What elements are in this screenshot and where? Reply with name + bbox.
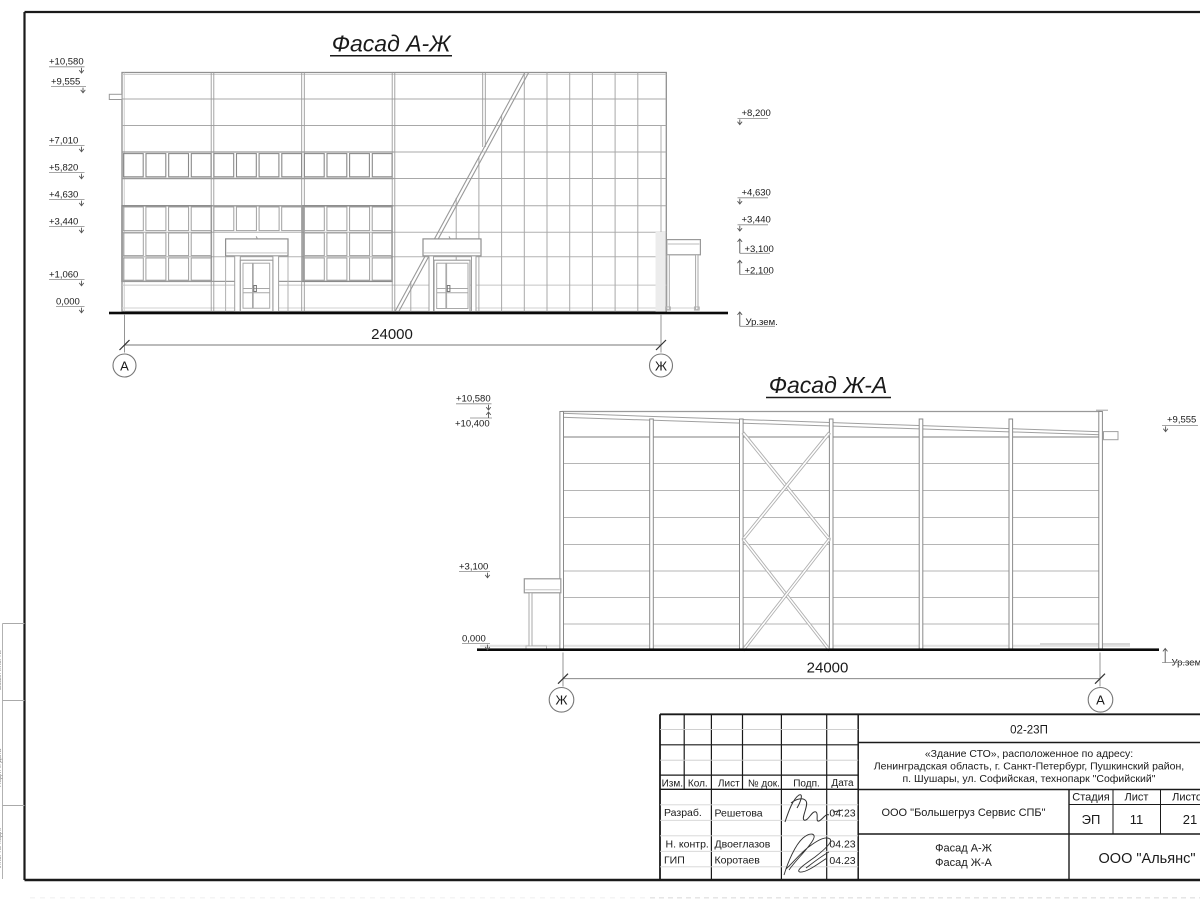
svg-text:04.23: 04.23 (829, 855, 855, 867)
svg-text:Подп.: Подп. (793, 779, 820, 790)
svg-text:+9,555: +9,555 (1167, 414, 1196, 425)
svg-text:А: А (120, 358, 129, 373)
svg-text:+10,580: +10,580 (49, 57, 84, 68)
svg-text:Фасад А-Ж: Фасад А-Ж (935, 843, 992, 855)
svg-text:24000: 24000 (807, 660, 849, 677)
svg-text:Дата: Дата (831, 778, 854, 789)
svg-text:«Здание СТО», расположенное по: «Здание СТО», расположенное по адресу: (925, 748, 1133, 760)
svg-text:А: А (1096, 693, 1105, 708)
svg-text:Двоеглазов: Двоеглазов (715, 839, 771, 851)
svg-text:+5,820: +5,820 (49, 162, 78, 173)
svg-text:Разраб.: Разраб. (664, 807, 702, 819)
svg-text:+10,400: +10,400 (455, 418, 490, 429)
svg-text:0,000: 0,000 (56, 296, 80, 307)
svg-text:Ж: Ж (555, 693, 567, 708)
svg-text:04.23: 04.23 (829, 807, 855, 819)
svg-text:Фасад Ж-А: Фасад Ж-А (769, 372, 888, 398)
svg-text:Изм.: Изм. (662, 779, 683, 790)
svg-text:+4,630: +4,630 (49, 189, 78, 200)
svg-text:+3,100: +3,100 (459, 561, 488, 572)
svg-text:+9,555: +9,555 (51, 76, 80, 87)
svg-text:Ленинградская область, г. Санк: Ленинградская область, г. Санкт-Петербур… (874, 761, 1184, 773)
svg-text:ГИП: ГИП (664, 854, 685, 866)
svg-text:11: 11 (1130, 812, 1144, 827)
svg-text:Н. контр.: Н. контр. (666, 839, 709, 851)
svg-text:+8,200: +8,200 (742, 108, 771, 119)
svg-text:ООО "Большегруз Сервис СПБ": ООО "Большегруз Сервис СПБ" (881, 807, 1045, 819)
svg-text:Коротаев: Коротаев (715, 854, 761, 866)
svg-text:Подп. и дата: Подп. и дата (0, 748, 3, 787)
svg-text:Кол.: Кол. (688, 779, 708, 790)
svg-text:Фасад Ж-А: Фасад Ж-А (935, 857, 992, 869)
svg-text:24000: 24000 (371, 326, 413, 343)
svg-text:+10,580: +10,580 (456, 394, 491, 405)
svg-text:+4,630: +4,630 (742, 188, 771, 199)
svg-text:0,000: 0,000 (462, 633, 486, 644)
svg-text:Взам. инв. №: Взам. инв. № (0, 650, 3, 690)
svg-text:Лист: Лист (718, 779, 740, 790)
svg-text:Ж: Ж (655, 358, 667, 373)
svg-text:п. Шушары, ул. Софийская, техн: п. Шушары, ул. Софийская, технопарк "Соф… (903, 773, 1156, 785)
svg-text:04.23: 04.23 (829, 839, 855, 851)
svg-text:Листов: Листов (1172, 792, 1200, 804)
svg-text:ООО "Альянс": ООО "Альянс" (1099, 851, 1196, 867)
svg-text:+3,440: +3,440 (49, 216, 78, 227)
svg-text:+7,010: +7,010 (49, 135, 78, 146)
svg-text:Лист: Лист (1125, 792, 1149, 804)
svg-text:+1,060: +1,060 (49, 269, 78, 280)
svg-text:Решетова: Решетова (715, 807, 763, 819)
svg-text:Инв. № подл.: Инв. № подл. (0, 827, 3, 868)
svg-text:Фасад А-Ж: Фасад А-Ж (332, 31, 452, 57)
svg-text:21: 21 (1183, 812, 1197, 827)
svg-text:ЭП: ЭП (1082, 812, 1101, 827)
svg-text:02-23П: 02-23П (1010, 725, 1048, 737)
svg-text:Стадия: Стадия (1072, 792, 1110, 804)
svg-text:+3,440: +3,440 (742, 215, 771, 226)
svg-text:№ док.: № док. (748, 779, 780, 790)
